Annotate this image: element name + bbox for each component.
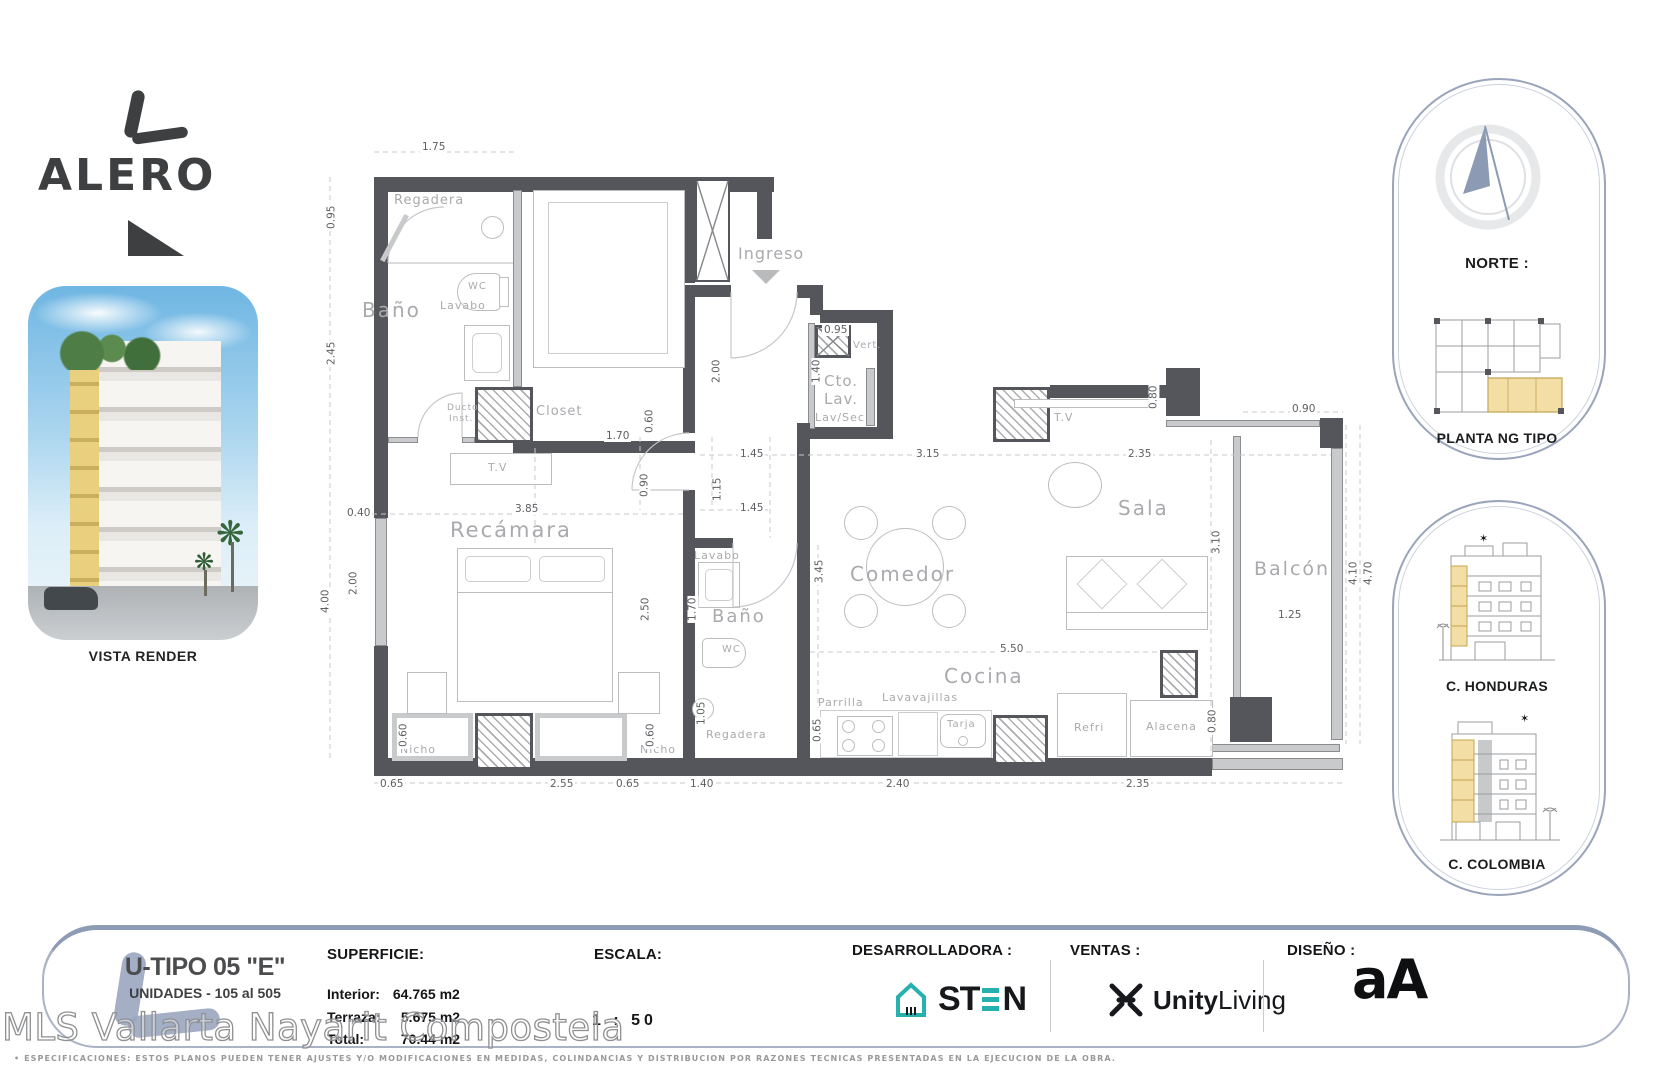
- dining-chair: [844, 594, 878, 628]
- burner: [872, 720, 885, 733]
- room-label: Cocina: [944, 666, 1024, 686]
- wall: [1050, 385, 1180, 398]
- dim-label: 2.50: [640, 596, 651, 623]
- fixture-label: Parrilla: [818, 697, 864, 708]
- sink-basin: [705, 569, 733, 601]
- compass-icon: [1423, 112, 1553, 242]
- svg-text:✶: ✶: [1479, 532, 1488, 545]
- dim-label: 2.55: [548, 779, 575, 790]
- dim-label: 0.95: [326, 204, 337, 231]
- unityliving-logo: UnityLiving: [1106, 980, 1286, 1020]
- wall-light: [513, 190, 522, 387]
- dining-chair: [844, 506, 878, 540]
- alero-logo: ALERO: [30, 80, 280, 270]
- dim-label: 0.60: [645, 722, 656, 749]
- palm-trunk: [204, 570, 207, 596]
- dim-label: 2.45: [326, 340, 337, 367]
- elevation-honduras-drawing: ✶: [1435, 532, 1559, 672]
- hatch-column: [993, 387, 1050, 442]
- fixture-label: Lav.: [824, 392, 858, 407]
- building-yellow-wing: [70, 358, 99, 608]
- mls-watermark: MLS Vallarta Nayarit Compostela: [2, 1006, 625, 1049]
- unit-range: UNIDADES - 105 al 505: [110, 985, 300, 1001]
- aa-logo: aA: [1352, 948, 1426, 1011]
- superficie-row-value: 64.765 m2: [393, 986, 460, 1002]
- dishwasher: [898, 712, 938, 756]
- unit-type-title: U-TIPO 05 "E": [110, 953, 300, 982]
- dim-label: 1.45: [738, 449, 765, 460]
- dim-label: 4.70: [1363, 560, 1374, 587]
- wall: [808, 427, 893, 439]
- unityliving-x-icon: [1106, 981, 1146, 1019]
- armchair: [1048, 462, 1102, 508]
- sten-logo: ST N: [890, 978, 1027, 1020]
- toilet-tank: [499, 277, 509, 307]
- dim-label: 5.50: [998, 644, 1025, 655]
- dim-label: 2.35: [1126, 449, 1153, 460]
- fixture-label: Regadera: [394, 194, 464, 207]
- elevation-colombia-drawing: ✶: [1438, 712, 1562, 850]
- fixture-label: Regadera: [706, 729, 767, 740]
- sofa-seat-line: [1066, 612, 1208, 613]
- tv-console: [1014, 399, 1154, 408]
- sink-basin: [472, 333, 502, 373]
- fixture-label: Cto.: [824, 374, 858, 389]
- wall-light: [462, 437, 475, 443]
- dim-label: 2.00: [348, 570, 359, 597]
- dim-label: 3.10: [1211, 529, 1222, 556]
- dim-label: 0.90: [1290, 404, 1317, 415]
- fixture-label: T.V: [1054, 412, 1073, 423]
- room-label: Baño: [362, 300, 421, 320]
- dim-label: 4.10: [1348, 560, 1359, 587]
- wall: [683, 538, 733, 548]
- dim-label: 1.75: [420, 142, 447, 153]
- dim-label: 1.45: [738, 503, 765, 514]
- dim-label: 0.80: [1148, 384, 1159, 411]
- room-label: Baño: [712, 608, 766, 626]
- wall: [1320, 418, 1343, 448]
- alero-check-icon: [132, 126, 189, 145]
- wall: [797, 423, 810, 763]
- elevation-honduras-caption: C. HONDURAS: [1392, 678, 1602, 694]
- dim-label: 3.85: [513, 504, 540, 515]
- dim-label: 0.60: [398, 722, 409, 749]
- fixture-label: Alacena: [1146, 721, 1197, 732]
- hatch-column: [993, 715, 1048, 765]
- blanket-line: [457, 592, 613, 593]
- fixture-label: Lav/Sec: [815, 412, 865, 423]
- superficie-row-label: Interior:: [327, 986, 389, 1002]
- diseno-label: DISEÑO :: [1287, 942, 1355, 959]
- alero-wordmark: ALERO: [38, 150, 216, 201]
- fixture-label: Lavabo: [440, 300, 486, 311]
- dim-label: 1.70: [604, 431, 631, 442]
- elevator-shaft: [695, 179, 730, 282]
- wall-light: [388, 437, 418, 443]
- wall-light: [1212, 758, 1343, 770]
- dim-label: 0.95: [822, 325, 849, 336]
- keyplan-drawing: [1432, 316, 1568, 420]
- wall: [374, 177, 388, 518]
- hatch-column: [475, 713, 533, 770]
- wall: [1230, 697, 1272, 742]
- dim-label: 1.40: [688, 779, 715, 790]
- fixture-label: T.V: [488, 462, 507, 473]
- fixture-label: Lavabo: [694, 550, 740, 561]
- fixture-label: Inst.: [449, 415, 473, 424]
- elevation-colombia-caption: C. COLOMBIA: [1392, 856, 1602, 872]
- burner: [842, 739, 855, 752]
- superficie-label: SUPERFICIE:: [327, 946, 424, 963]
- dining-chair: [932, 594, 966, 628]
- fixture-label: Closet: [536, 405, 583, 418]
- wall: [374, 646, 388, 762]
- dining-chair: [932, 506, 966, 540]
- wall: [1166, 368, 1200, 416]
- dim-label: 2.40: [884, 779, 911, 790]
- dim-label: 2.35: [1124, 779, 1151, 790]
- room-label: Ingreso: [738, 246, 804, 262]
- dim-label: 1.40: [811, 358, 822, 385]
- divider: [1263, 960, 1264, 1032]
- ventas-label: VENTAS :: [1070, 942, 1141, 959]
- render-caption: VISTA RENDER: [28, 648, 258, 664]
- washer-dryer: [866, 368, 875, 426]
- fixture-label: Ducto: [447, 404, 479, 413]
- dim-label: 3.15: [914, 449, 941, 460]
- nightstand: [618, 672, 660, 714]
- dim-label: 4.00: [320, 588, 331, 615]
- sten-house-icon: [890, 979, 932, 1019]
- balcony-edge: [1212, 744, 1340, 752]
- wall: [757, 177, 772, 239]
- dim-label: 1.05: [696, 700, 707, 727]
- dim-label: 1.70: [687, 596, 698, 623]
- dim-label: 1.15: [712, 476, 723, 503]
- sten-wordmark-n: N: [1002, 980, 1027, 1019]
- unityliving-word-bold: Unity: [1153, 985, 1218, 1016]
- room-label: Recámara: [450, 520, 572, 541]
- dim-label: 0.65: [614, 779, 641, 790]
- keyplan-caption: PLANTA NG TIPO: [1392, 430, 1602, 446]
- dim-label: 0.80: [1207, 708, 1218, 735]
- render-photo: ❋ ❋: [28, 286, 258, 640]
- balcony-edge: [1166, 420, 1320, 427]
- window: [375, 518, 387, 646]
- room-label: Sala: [1118, 498, 1169, 518]
- fixture-label: WC: [722, 645, 741, 655]
- unityliving-word-light: Living: [1218, 985, 1286, 1016]
- wall: [877, 310, 893, 437]
- svg-text:✶: ✶: [1520, 712, 1529, 725]
- pillow: [465, 556, 531, 582]
- superficie-row: Interior: 64.765 m2: [327, 986, 460, 1002]
- fixture-label: WC: [468, 282, 487, 292]
- balcony-edge: [1331, 448, 1343, 740]
- hatch-column: [475, 387, 533, 443]
- dim-label: 0.60: [644, 408, 655, 435]
- dim-label: 0.90: [639, 472, 650, 499]
- fineprint-note: • ESPECIFICACIONES: ESTOS PLANOS PUEDEN …: [14, 1054, 1116, 1063]
- car: [44, 587, 98, 610]
- palm-trunk: [231, 542, 234, 592]
- dim-label: 1.25: [1276, 610, 1303, 621]
- plan-sheet: ALERO ❋ ❋ VISTA RENDER: [0, 0, 1669, 1080]
- roof-foliage: [52, 322, 172, 370]
- dim-label: 0.65: [812, 717, 823, 744]
- shower-head: [481, 216, 504, 239]
- alero-triangle-icon: [128, 220, 184, 256]
- niche: [535, 713, 627, 761]
- faucet: [958, 736, 968, 746]
- sten-e-bars-icon: [982, 986, 999, 1013]
- room-label: Balcón: [1254, 560, 1330, 579]
- escala-label: ESCALA:: [594, 946, 662, 963]
- entry-arrow-icon: [752, 270, 780, 284]
- room-label: Comedor: [850, 564, 955, 584]
- wall: [513, 441, 695, 453]
- dim-label: 3.45: [814, 558, 825, 585]
- pillow: [539, 556, 605, 582]
- burner: [842, 720, 855, 733]
- burner: [872, 739, 885, 752]
- desarrolladora-label: DESARROLLADORA :: [852, 942, 1012, 959]
- sten-wordmark-st: ST: [938, 980, 979, 1019]
- nightstand: [407, 672, 447, 714]
- fixture-label: Refri: [1074, 722, 1104, 733]
- fixture-label: Lavavajillas: [882, 692, 958, 703]
- dim-label: 0.40: [345, 508, 372, 519]
- fixture-label: Tarja: [947, 720, 976, 730]
- dim-label: 0.65: [378, 779, 405, 790]
- wardrobe-inner: [548, 202, 668, 354]
- north-label: NORTE :: [1392, 255, 1602, 272]
- hatch-column: [1160, 650, 1198, 698]
- divider: [1050, 960, 1051, 1032]
- wall: [683, 490, 695, 758]
- fixture-label: Vert.: [853, 341, 881, 351]
- dim-label: 2.00: [711, 358, 722, 385]
